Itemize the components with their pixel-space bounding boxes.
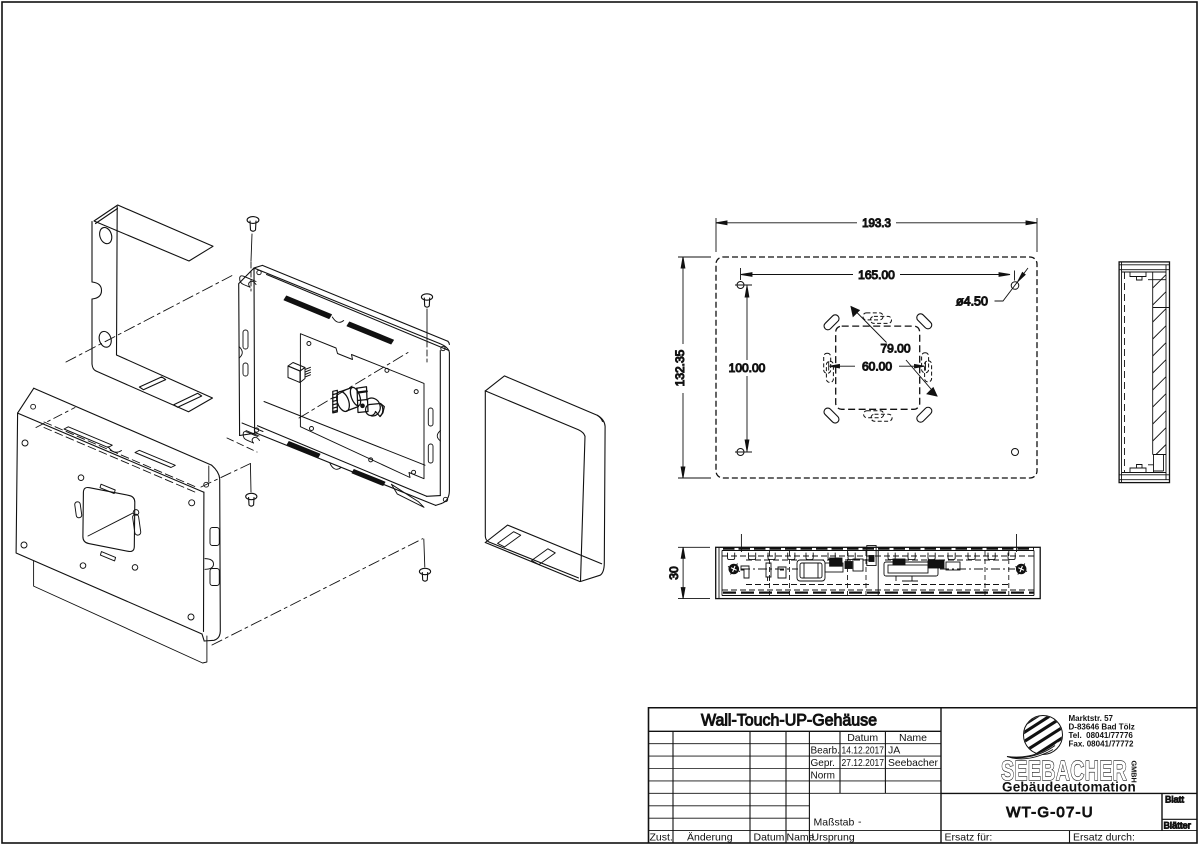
svg-text:Bearb.: Bearb. — [811, 746, 840, 757]
svg-text:Änderung: Änderung — [687, 832, 733, 844]
svg-text:30: 30 — [667, 566, 681, 580]
svg-text:Norm: Norm — [811, 770, 835, 781]
svg-text:Datum: Datum — [754, 832, 785, 844]
svg-text:Fax. 08041/77772: Fax. 08041/77772 — [1069, 740, 1134, 749]
svg-text:WT-G-07-U: WT-G-07-U — [1006, 804, 1093, 821]
svg-text:193.3: 193.3 — [862, 218, 891, 230]
svg-text:ø4.50: ø4.50 — [956, 295, 988, 309]
svg-text:14.12.2017: 14.12.2017 — [842, 745, 885, 757]
svg-text:Gepr.: Gepr. — [811, 758, 835, 769]
svg-text:79.00: 79.00 — [880, 342, 910, 356]
svg-text:Maßstab: Maßstab — [814, 817, 855, 829]
svg-text:Zust.: Zust. — [650, 832, 673, 844]
svg-text:-: - — [858, 816, 862, 828]
svg-text:Name: Name — [899, 732, 927, 744]
svg-text:Ersatz durch:: Ersatz durch: — [1073, 832, 1135, 844]
svg-text:Name: Name — [787, 832, 815, 844]
svg-text:Datum: Datum — [847, 732, 878, 744]
svg-text:Wall-Touch-UP-Gehäuse: Wall-Touch-UP-Gehäuse — [701, 711, 877, 730]
svg-text:Blätter: Blätter — [1164, 820, 1191, 831]
svg-text:27.12.2017: 27.12.2017 — [842, 757, 885, 769]
svg-text:Ursprung: Ursprung — [812, 832, 855, 844]
svg-text:JA: JA — [888, 745, 900, 757]
svg-text:100.00: 100.00 — [729, 361, 766, 375]
svg-text:Gebäudeautomation: Gebäudeautomation — [1002, 780, 1136, 795]
svg-text:165.00: 165.00 — [858, 268, 895, 282]
svg-text:132.35: 132.35 — [673, 349, 687, 386]
svg-text:60.00: 60.00 — [862, 360, 892, 374]
svg-text:Blatt: Blatt — [1165, 795, 1184, 806]
svg-text:Ersatz für:: Ersatz für: — [945, 832, 993, 844]
svg-text:Seebacher: Seebacher — [888, 757, 938, 769]
